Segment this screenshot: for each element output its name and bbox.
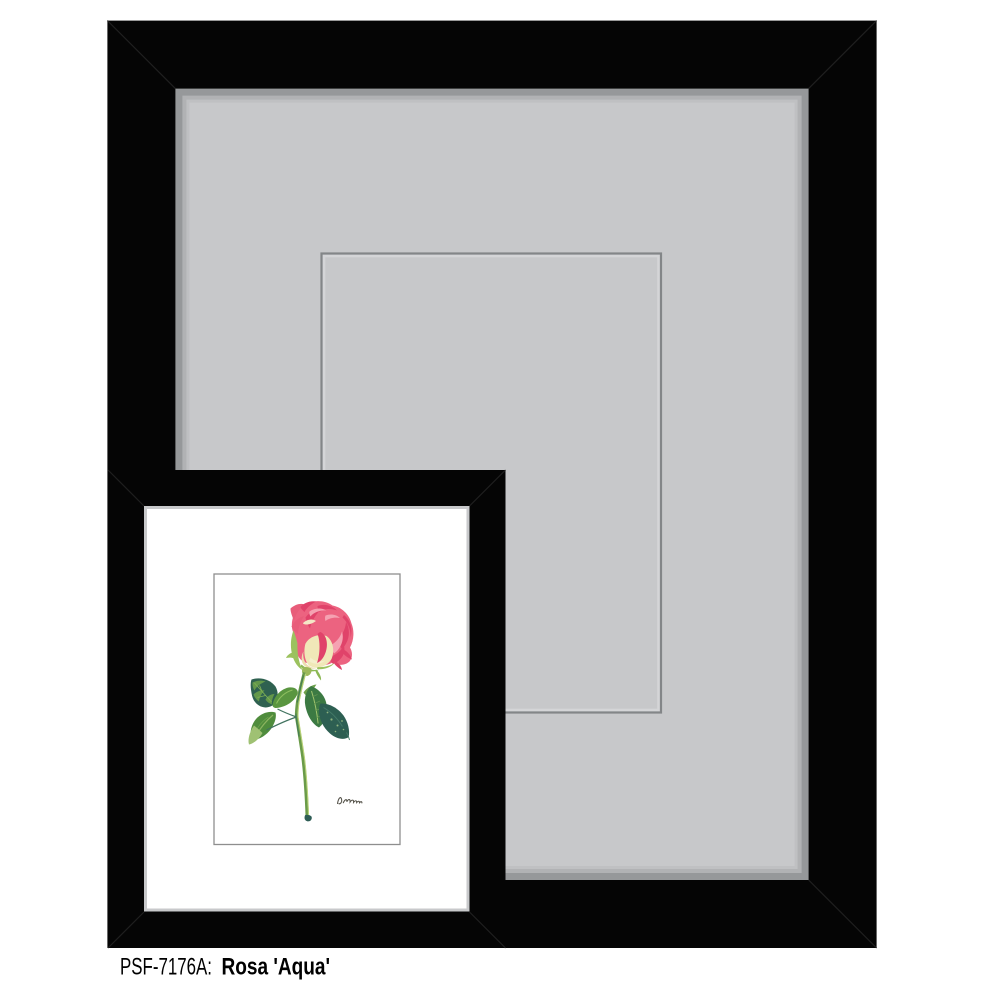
svg-text:Rosa 'Aqua': Rosa 'Aqua': [222, 953, 331, 980]
svg-text:PSF-7176A:: PSF-7176A:: [120, 953, 212, 980]
